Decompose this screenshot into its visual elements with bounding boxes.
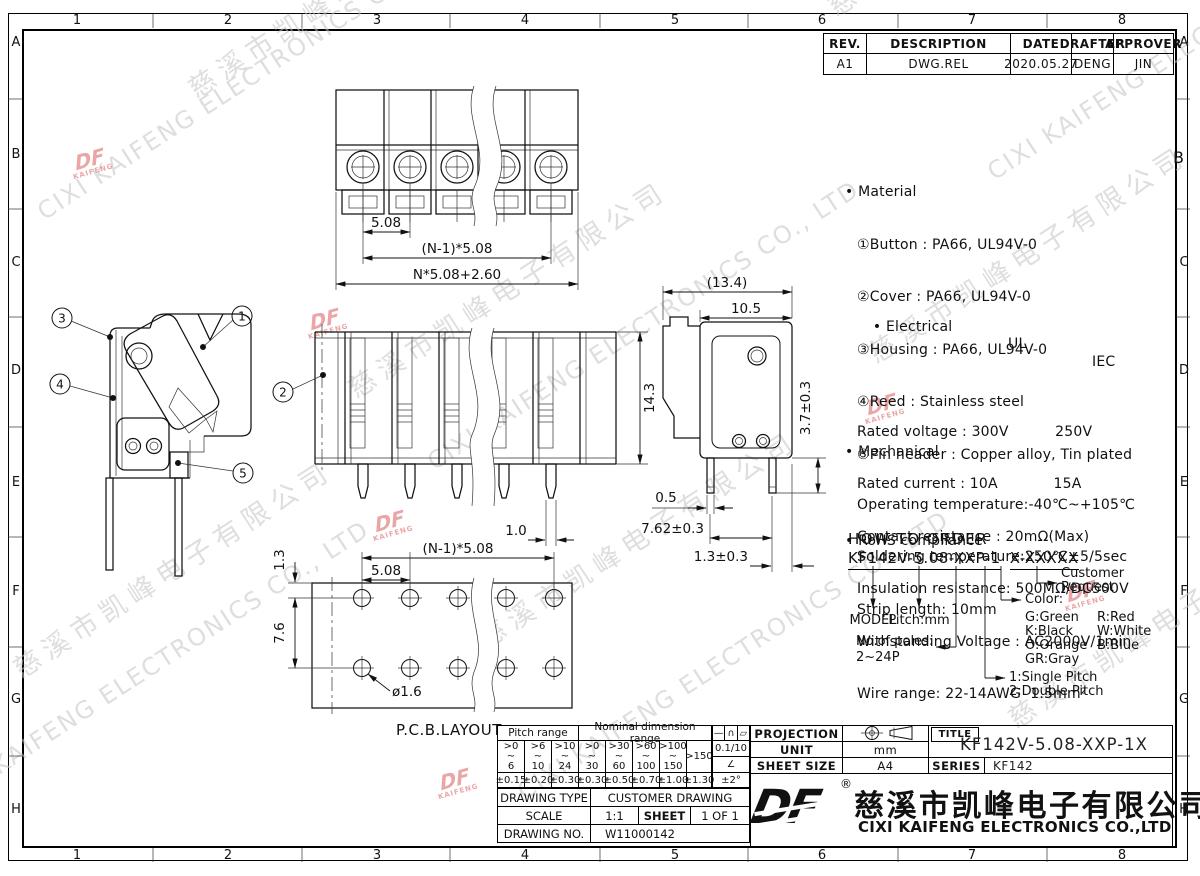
zone-number: 8 [1111,14,1133,28]
tol-range: >30 ~ 60 [606,741,633,773]
dim-side-pin-length: 3.7±0.3 [776,381,826,493]
drawing-sheet: 慈溪市凯峰电子有限公司 CIXI KAIFENG ELECTRONICS CO.… [0,0,1200,876]
dim-front-pin: 1.0 [505,500,574,546]
dim-pcb-hole: ø1.6 [368,674,422,700]
zone-letter: D [1173,364,1195,378]
sheet-size-value: A4 [843,758,929,774]
zone-number: 1 [66,14,88,28]
view-side-right: (13.4) 10.5 3.7±0.3 0.5 [641,275,826,572]
rev-header: APPROVER [1114,34,1173,54]
screw-symbols [347,151,567,183]
zone-letter: G [1173,693,1195,707]
zone-letter: D [5,364,27,378]
order-label-customer: Customer [1061,566,1124,581]
zone-letter: E [1173,476,1195,490]
callout-4: 4 [50,374,116,401]
order-label-single-pitch: 1:Single Pitch [1009,670,1097,685]
tol-range: >150 [687,741,712,773]
dim-side-pin-width: 0.5 [652,490,733,514]
zone-letter: G [5,693,27,707]
dim-label: N*5.08+2.60 [413,267,501,283]
color-option: R:Red [1097,610,1135,625]
registered-mark: ® [840,777,852,791]
zone-number: 5 [664,14,686,28]
zone-number: 3 [366,14,388,28]
drawing-type-label: DRAWING TYPE [498,789,591,807]
pins-front [358,464,556,498]
notes-mechanical-title: • Mechanical [845,444,1135,462]
zone-number: 4 [514,14,536,28]
zone-number: 1 [66,849,88,863]
rev-header: REV. [824,34,867,54]
view-top: 5.08 (N-1)*5.08 N*5.08+2.60 [336,86,578,290]
tol-range: >0 ~ 6 [498,741,525,773]
zone-letter: F [5,585,27,599]
callout-5: 5 [175,460,253,483]
callout-1: 1 [200,306,252,350]
zone-number: 4 [514,849,536,863]
callout-number: 2 [279,386,287,400]
projection-label: PROJECTION [751,726,843,742]
tol-range: >6 ~ 10 [525,741,552,773]
order-label-request: Request [1061,580,1114,595]
scale-label: SCALE [498,807,591,825]
zone-letter: B [5,148,27,162]
sheet-size-label: SHEET SIZE [751,758,843,774]
rev-cell: DENG [1072,54,1114,74]
dim-label: ø1.6 [392,684,422,700]
sheet-label: SHEET [639,807,691,825]
tol-value: ±0.20 [525,773,552,789]
order-code: KF142V-5.08-XXP-1X-XXXXX [848,549,1088,567]
dim-side-pin-offset: 1.3±0.3 [694,464,814,572]
series-value: KF142 [985,758,1172,774]
dim-pcb-edge: 1.3 [272,549,350,598]
callout-number: 1 [238,310,246,324]
dim-label: 1.3 [272,549,288,570]
color-option: O:Orange [1025,638,1097,653]
color-option: B:Blue [1097,638,1139,653]
zone-letter: B [1173,148,1184,167]
tol-angle-value: ±2° [713,773,749,787]
unit-value: mm [843,742,929,758]
zone-letter: E [5,476,27,490]
rev-cell: JIN [1114,54,1173,74]
dim-label: (13.4) [707,275,748,291]
order-title: HOW TO ORDER [848,530,988,548]
order-label-poles: No.of poles: [856,634,933,649]
color-option: GR:Gray [1025,652,1097,667]
color-option: K:Black [1025,624,1097,639]
zone-number: 2 [217,849,239,863]
tol-value: ±0.50 [606,773,633,789]
zone-number: 5 [664,849,686,863]
order-label-color: Color: [1025,592,1063,607]
view-side-left: 3 1 4 5 [50,306,253,576]
col-header-iec: IEC [1092,354,1115,372]
zone-letter: C [1173,256,1195,270]
dim-label: 7.62±0.3 [641,521,704,537]
segment-details [350,338,553,448]
zone-letter: C [5,256,27,270]
scale-value: 1:1 [591,807,639,825]
title-value: KF142V-5.08-XXP-1X [939,735,1169,754]
drawing-info-table: DRAWING TYPE CUSTOMER DRAWING SCALE 1:1 … [497,788,750,843]
zone-letter: F [1173,585,1195,599]
drawing-no-label: DRAWING NO. [498,825,591,842]
tolerance-symbols-column: — ∩ ▱ 0.1/10 ∠ ±2° [712,725,750,788]
zone-letter: A [5,36,27,50]
drawing-no-value: W11000142 [591,825,749,842]
unit-label: UNIT [751,742,843,758]
order-label-pitch: Pitch:mm [887,613,951,628]
color-option: G:Green [1025,610,1097,625]
drawing-type-value: CUSTOMER DRAWING [591,789,749,807]
color-option: W:White [1097,624,1151,639]
dim-label: 7.6 [272,622,288,643]
dim-label: (N-1)*5.08 [422,241,493,257]
pcb-layout-label: P.C.B.LAYOUT [396,721,502,739]
projection-symbol-cell [843,726,929,742]
pcb-holes [350,586,566,680]
tol-header-pitch: Pitch range [498,726,579,741]
dim-label: 0.5 [655,490,676,506]
line-symbol: — [713,726,725,741]
revision-table: REV. DESCRIPTION DATE DRAFTER APPROVER A… [823,33,1174,75]
tol-fraction: 0.1/10 [713,741,749,757]
dim-label: (N-1)*5.08 [423,541,494,557]
title-cell: TITLE KF142V-5.08-XXP-1X [929,726,1172,758]
dim-pcb-rows: 7.6 [272,598,350,668]
zone-letter: H [5,803,27,817]
dim-pcb-span: (N-1)*5.08 5.08 [362,541,554,588]
rev-cell: DWG.REL [867,54,1011,74]
tol-range: >60 ~ 100 [633,741,660,773]
tol-value: ±0.30 [579,773,606,789]
zone-number: 3 [366,849,388,863]
order-color-row: K:BlackW:White [1025,624,1151,639]
notes-electrical-title: • Electrical [873,319,952,335]
zone-number: 6 [811,14,833,28]
rev-cell: 2020.05.27 [1011,54,1072,74]
order-color-row: O:OrangeB:Blue [1025,638,1139,653]
company-name-en: CIXI KAIFENG ELECTRONICS CO.,LTD [858,818,1172,836]
zone-number: 7 [961,849,983,863]
company-logo: DF [752,784,838,836]
dim-side-body: 10.5 [700,301,792,322]
dim-label: 14.3 [642,383,658,413]
callout-number: 4 [56,378,64,392]
tol-value: ±0.30 [552,773,579,789]
tol-range: >10 ~ 24 [552,741,579,773]
tol-value: ±1.30 [687,773,712,789]
dim-label: 5.08 [371,563,401,579]
zone-number: 6 [811,849,833,863]
sheet-value: 1 OF 1 [691,807,749,825]
callout-number: 3 [58,312,66,326]
tol-header-nominal: Nominal dimension range [579,726,712,741]
tol-value: ±0.70 [633,773,660,789]
zone-number: 2 [217,14,239,28]
tol-range: >100 ~ 150 [660,741,687,773]
dim-front-height: 14.3 [616,332,658,464]
order-code-left: KF142V-5.08-XXP-1 [848,549,1001,570]
dim-label: 1.0 [505,523,526,539]
zone-number: 8 [1111,849,1133,863]
angle-symbol: ∠ [713,757,749,773]
rev-cell: A1 [824,54,867,74]
rev-header: DESCRIPTION [867,34,1011,54]
dim-side-total: (13.4) [663,275,792,320]
tol-range: >0 ~ 30 [579,741,606,773]
callout-3: 3 [52,308,113,340]
notes-material-title: • Material [845,184,1132,202]
callout-2: 2 [273,372,326,402]
callout-number: 5 [239,467,247,481]
tol-value: ±0.15 [498,773,525,789]
zone-number: 7 [961,14,983,28]
order-label-double-pitch: 2:Double Pitch [1009,684,1104,699]
order-color-row: GR:Gray [1025,652,1097,667]
tolerance-table: Pitch range Nominal dimension range >0 ~… [497,725,713,788]
view-front: 2 14.3 1.0 [273,324,658,546]
col-header-ul: UL [1008,336,1026,354]
dim-label: 10.5 [731,301,761,317]
view-pcb-layout: 1.3 7.6 (N-1)*5.08 5.08 ø1.6 [272,541,572,714]
order-color-row: G:GreenR:Red [1025,610,1135,625]
parallelogram-symbol: ▱ [738,726,749,741]
dim-label: 5.08 [371,215,401,231]
order-label-poles-range: 2~24P [856,650,900,665]
arc-symbol: ∩ [725,726,737,741]
dim-label: 1.3±0.3 [694,549,748,565]
dim-label: 3.7±0.3 [798,381,814,435]
note-line: ①Button : PA66, UL94V-0 [845,237,1132,255]
series-label: SERIES [929,758,985,774]
